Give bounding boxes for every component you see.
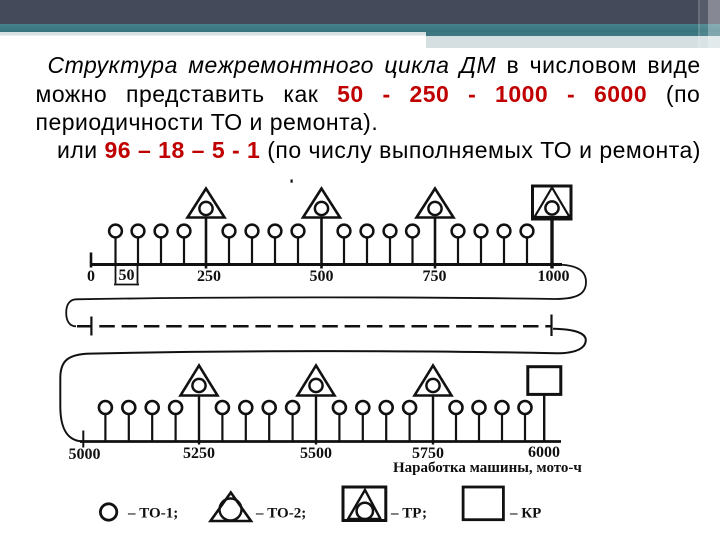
svg-text:– ТО-2;: – ТО-2; <box>255 506 306 522</box>
svg-text:6000: 6000 <box>528 444 560 461</box>
svg-text:250: 250 <box>197 268 221 285</box>
svg-text:– ТО-1;: – ТО-1; <box>127 506 178 522</box>
svg-text:50: 50 <box>119 267 135 284</box>
svg-text:0: 0 <box>87 268 95 285</box>
svg-text:1000: 1000 <box>538 268 570 285</box>
svg-text:– КР: – КР <box>509 506 541 522</box>
svg-text:– ТР;: – ТР; <box>390 506 427 522</box>
svg-text:750: 750 <box>423 268 447 285</box>
svg-text:5000: 5000 <box>69 446 101 463</box>
svg-text:5250: 5250 <box>183 445 215 462</box>
svg-text:Наработка машины, мото-ч: Наработка машины, мото-ч <box>393 460 582 476</box>
svg-text:5500: 5500 <box>300 445 332 462</box>
svg-text:500: 500 <box>310 268 334 285</box>
